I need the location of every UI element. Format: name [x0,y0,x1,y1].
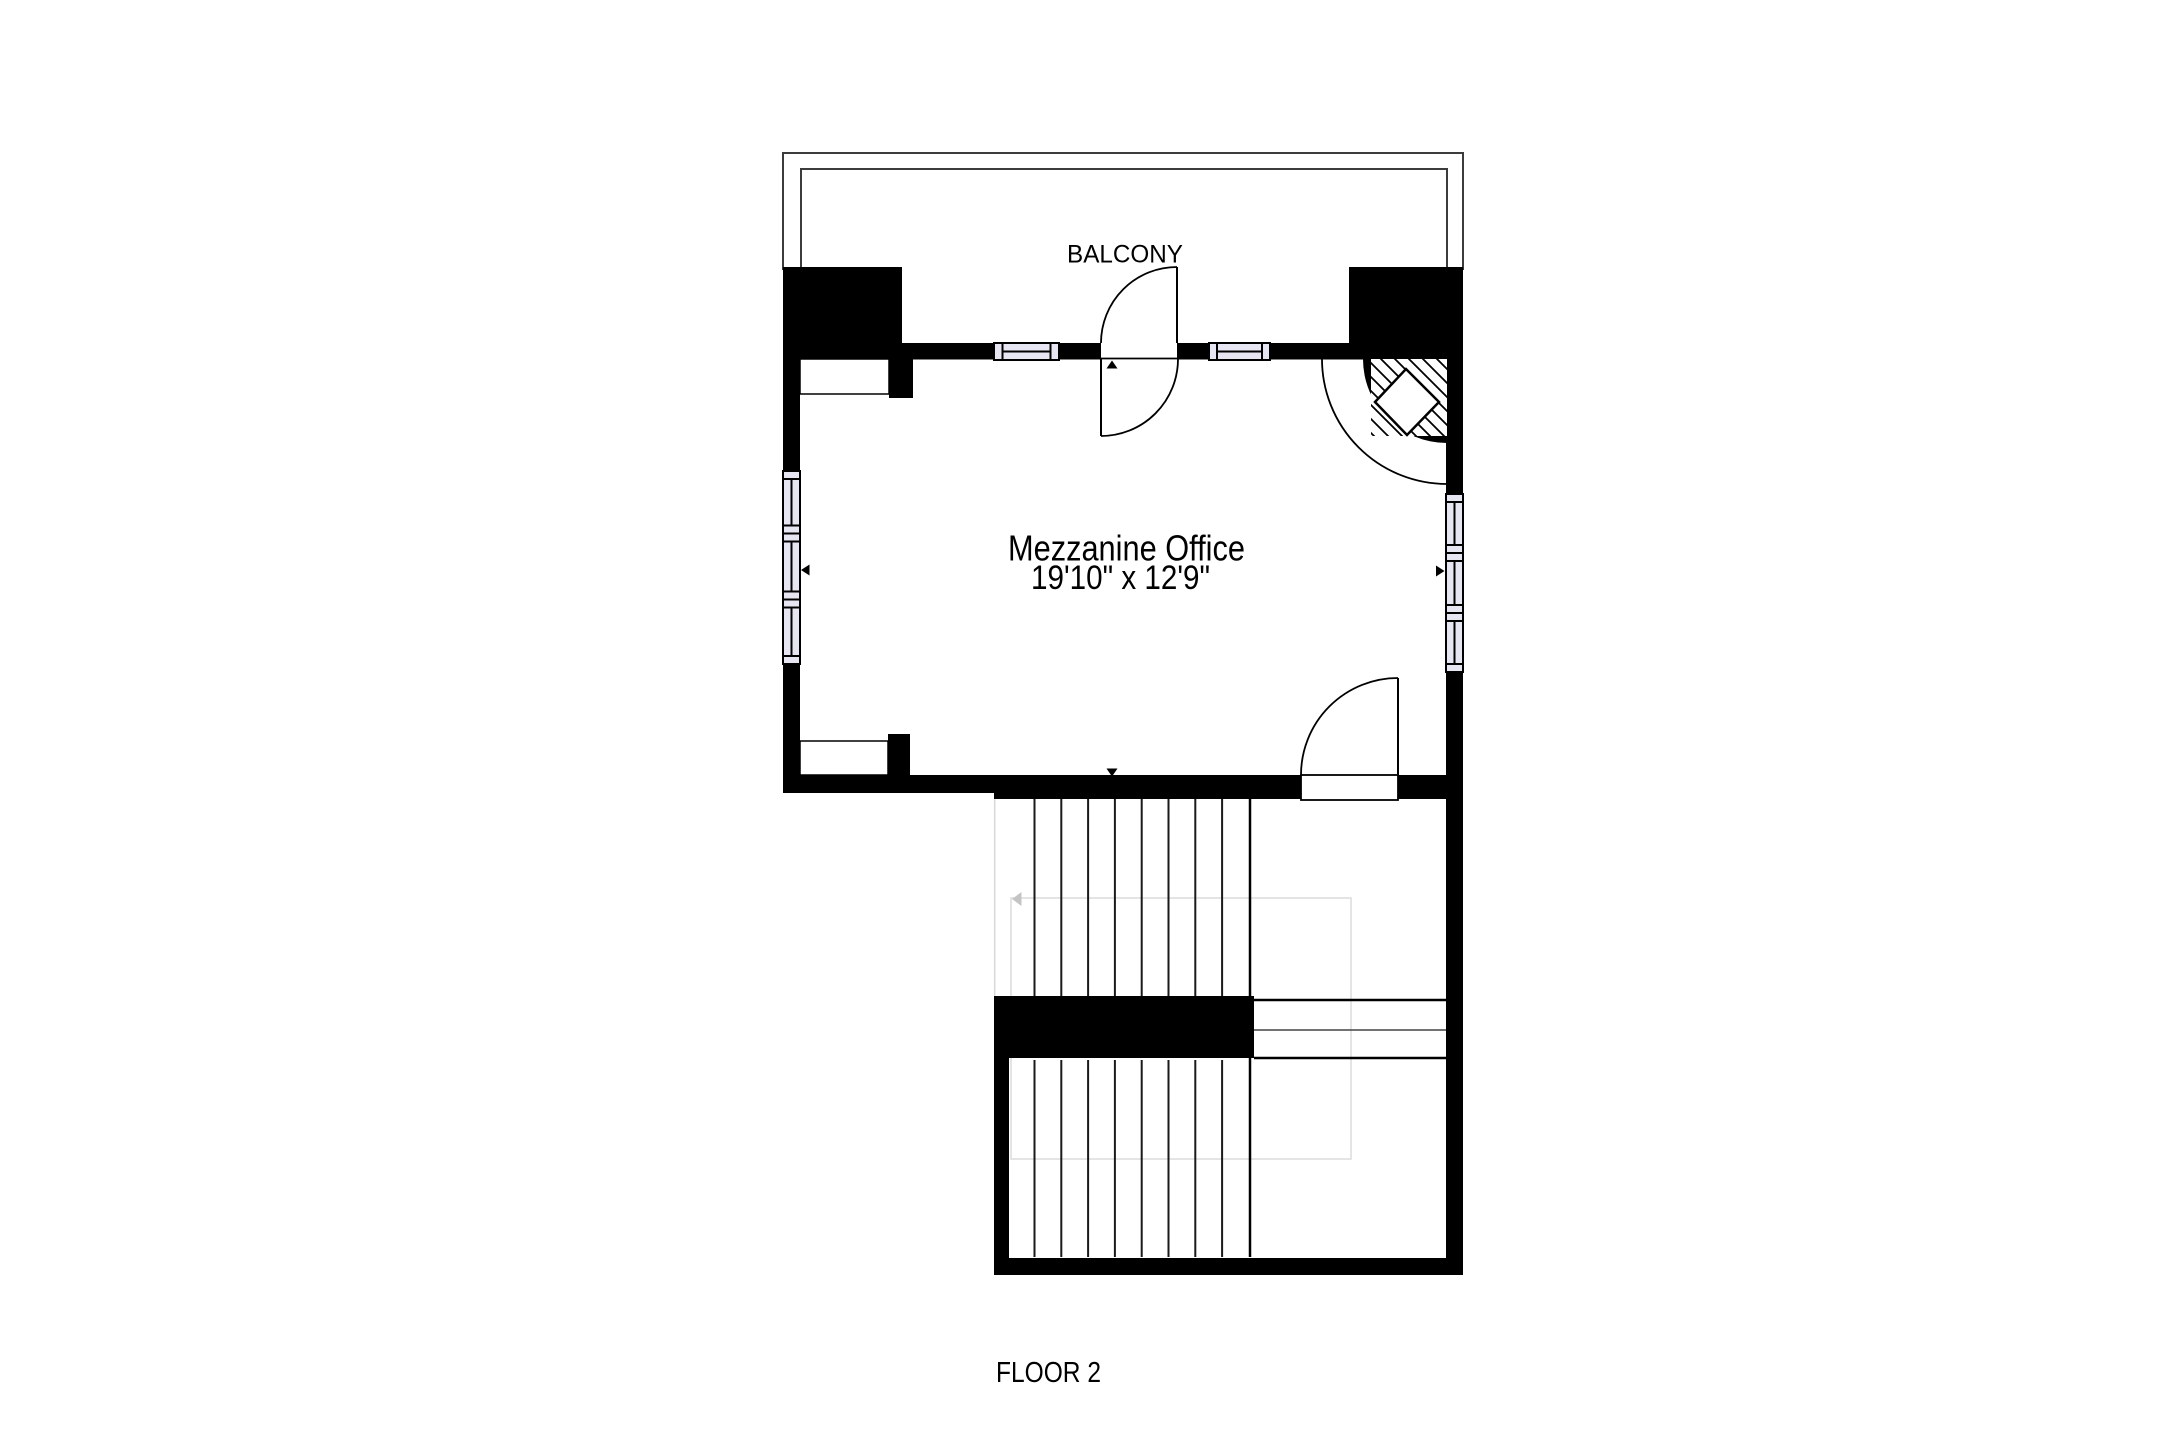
svg-text:19'10" x 12'9": 19'10" x 12'9" [1031,559,1210,597]
svg-text:FLOOR 2: FLOOR 2 [996,1357,1101,1389]
svg-text:BALCONY: BALCONY [1067,241,1183,269]
